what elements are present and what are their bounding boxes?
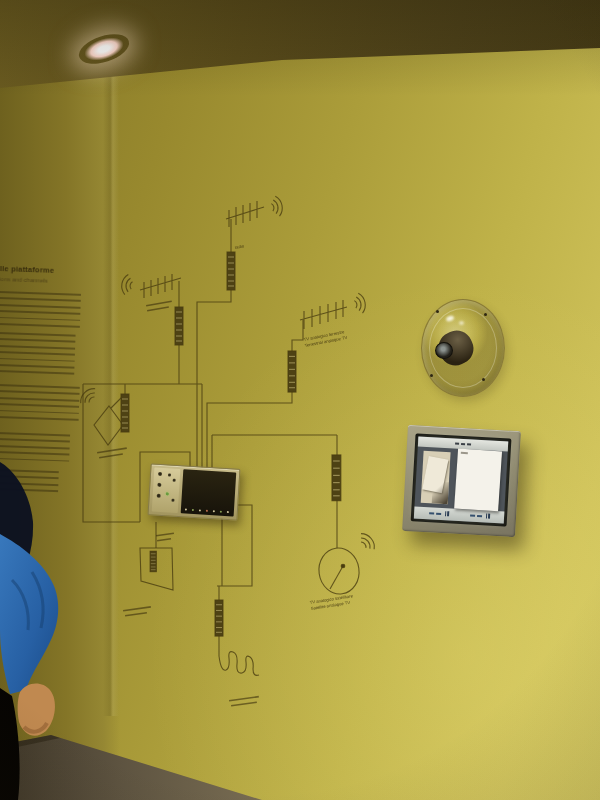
visitor-body [0, 688, 20, 800]
scene-figures [0, 0, 600, 800]
floor [0, 735, 262, 800]
